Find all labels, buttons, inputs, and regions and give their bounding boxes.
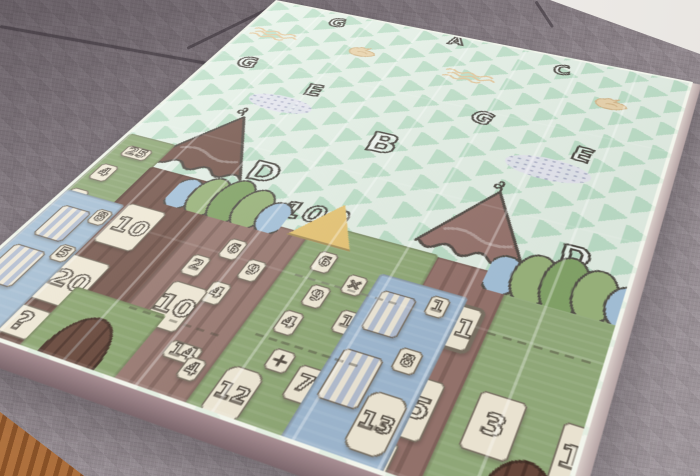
sky-wave-decoration [245,26,305,45]
sky-bird-decoration [343,44,382,61]
number-tag-3: 3 [458,390,529,464]
number-tag-6: 6 [308,250,340,275]
sky-letter-C: C [553,64,570,77]
number-tag-9: 9 [299,283,333,310]
number-tag-25: 25 [119,145,154,162]
photo-scene: GACGEGBEDD10025491020?856924101446×914+7… [0,0,700,476]
number-tag-1: 1 [422,295,451,320]
number-tag-9: 9 [235,258,269,283]
striped-window [0,243,47,288]
sky-letter-G: G [465,108,498,128]
sky-letter-E: E [300,82,326,99]
sky-bird-decoration [590,94,633,115]
sky-letter-B: B [359,129,404,159]
number-tag-+: + [262,347,298,375]
sky-letter-G: G [326,18,349,30]
number-tag-4: 4 [271,309,306,337]
sky-wave-decoration [436,66,505,89]
number-tag-2: 2 [178,253,213,278]
sky-letter-A: A [447,35,467,47]
number-tag-8: 8 [389,346,424,376]
number-tag-6: 6 [216,238,249,262]
number-tag-4: 4 [87,163,120,183]
striped-window [32,204,92,242]
sky-letter-E: E [567,144,598,167]
sky-letter-G: G [233,55,262,70]
